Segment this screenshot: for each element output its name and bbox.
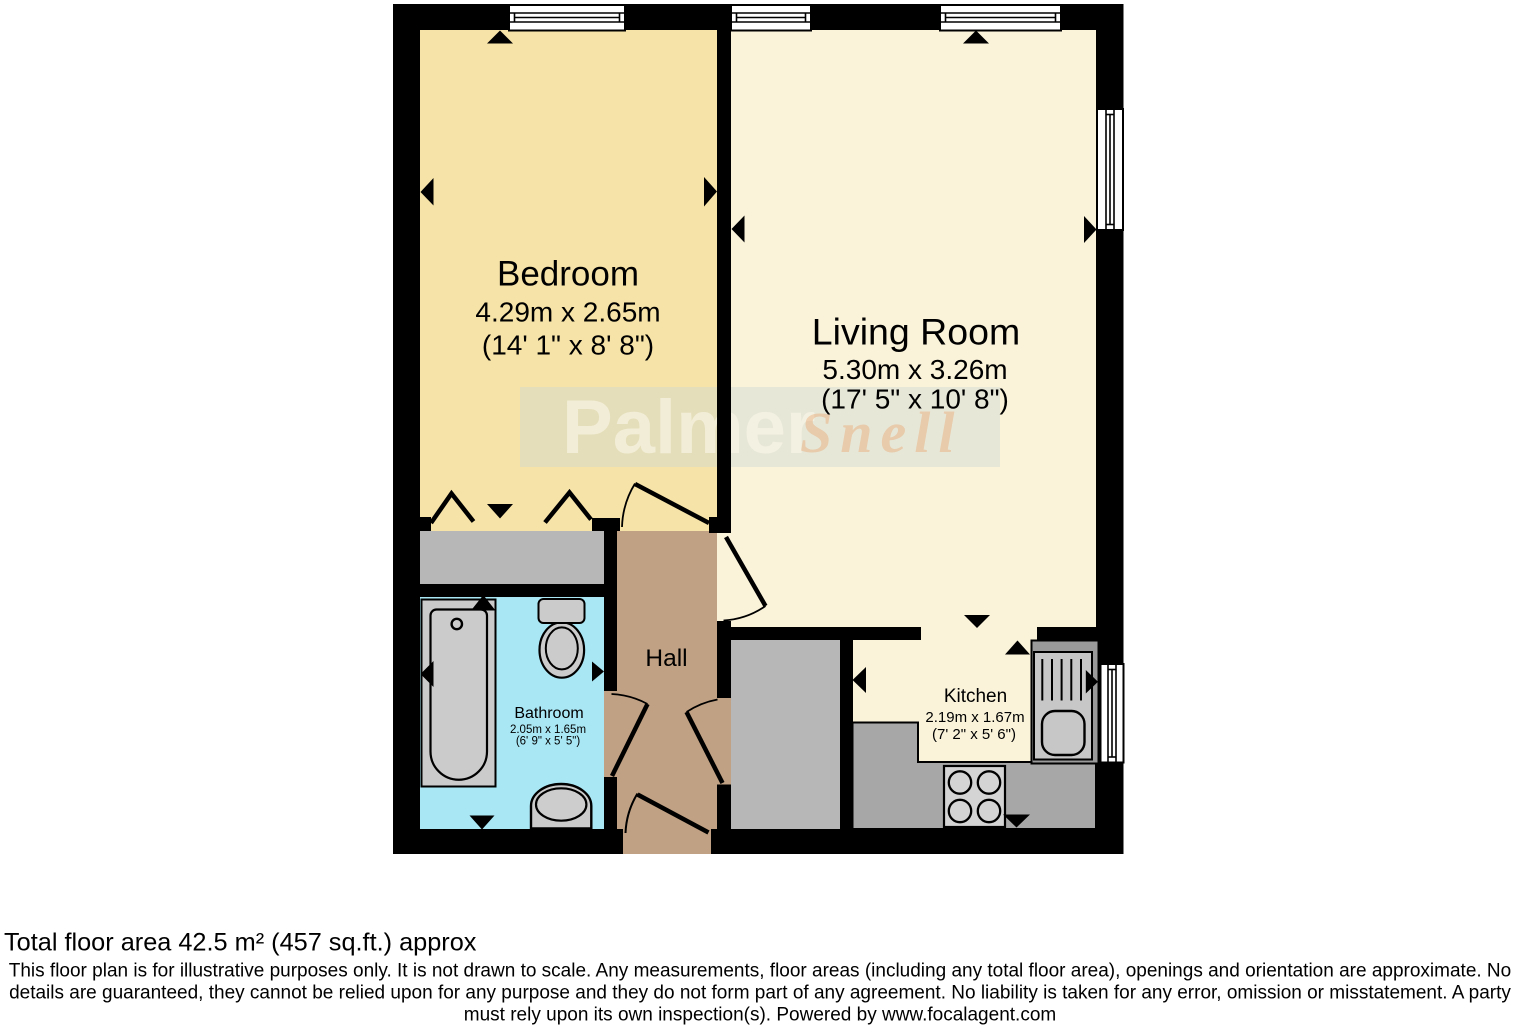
svg-text:5.30m x 3.26m: 5.30m x 3.26m	[822, 354, 1007, 385]
svg-text:2.19m x 1.67m: 2.19m x 1.67m	[925, 709, 1024, 726]
svg-text:(17' 5" x 10' 8"): (17' 5" x 10' 8")	[821, 384, 1009, 415]
svg-text:(7' 2" x 5' 6"): (7' 2" x 5' 6")	[932, 726, 1016, 743]
svg-text:This floor plan is for illustr: This floor plan is for illustrative purp…	[9, 960, 1511, 981]
svg-text:details are guaranteed, they c: details are guaranteed, they cannot be r…	[9, 983, 1511, 1004]
svg-text:Hall: Hall	[645, 645, 687, 672]
svg-text:Total floor area 42.5 m² (457: Total floor area 42.5 m² (457 sq.ft.) ap…	[4, 929, 477, 957]
svg-text:4.29m x 2.65m: 4.29m x 2.65m	[475, 297, 660, 328]
svg-text:Living Room: Living Room	[812, 311, 1020, 353]
svg-text:Bathroom: Bathroom	[514, 705, 583, 722]
svg-text:(14' 1" x 8' 8"): (14' 1" x 8' 8")	[482, 330, 654, 361]
svg-text:Kitchen: Kitchen	[944, 686, 1007, 707]
svg-text:must rely upon its own inspect: must rely upon its own inspection(s). Po…	[464, 1005, 1056, 1026]
svg-text:(6' 9" x 5' 5"): (6' 9" x 5' 5")	[516, 736, 580, 748]
svg-text:Bedroom: Bedroom	[497, 255, 639, 294]
svg-text:2.05m x 1.65m: 2.05m x 1.65m	[510, 724, 586, 736]
svg-text:Palmer: Palmer	[562, 385, 816, 470]
